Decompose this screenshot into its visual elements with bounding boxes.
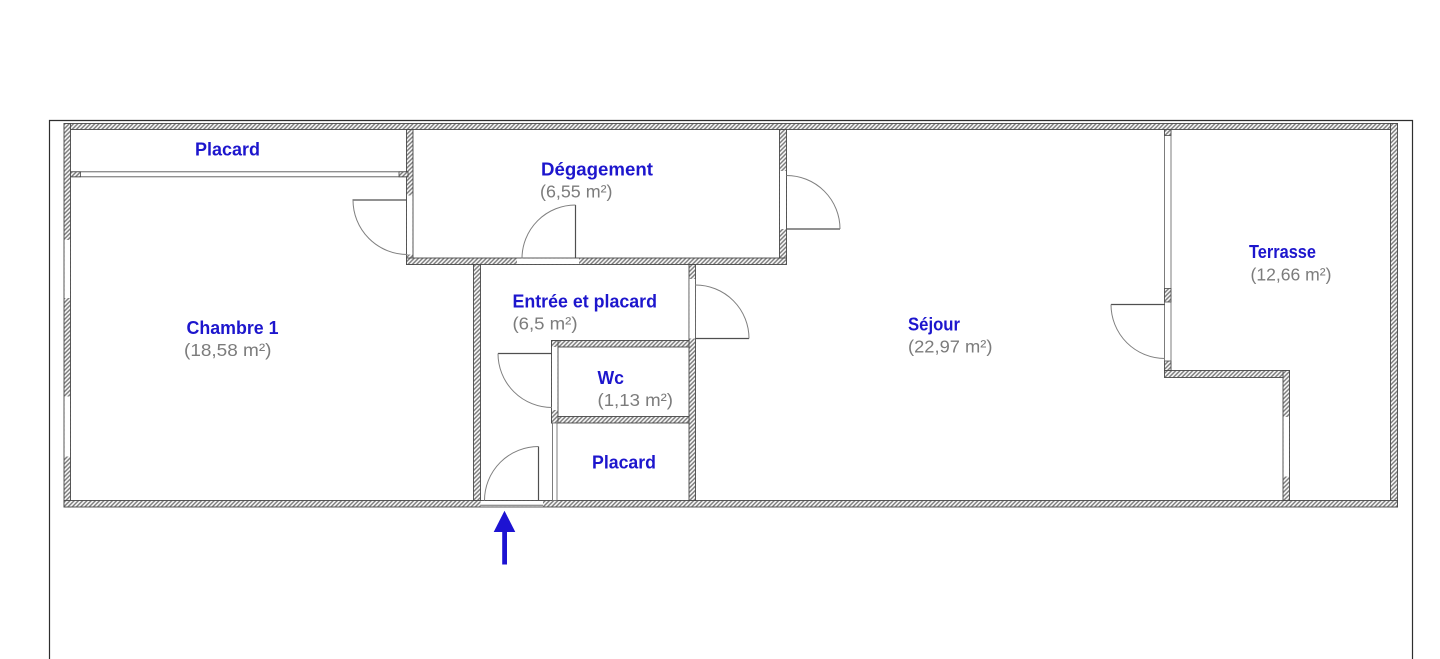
svg-text:Entrée et placard: Entrée et placard [513,292,658,312]
svg-text:(6,55 m²): (6,55 m²) [540,182,613,202]
svg-text:Chambre 1: Chambre 1 [187,318,279,338]
svg-text:Séjour: Séjour [908,315,960,335]
svg-text:Dégagement: Dégagement [541,160,653,180]
svg-text:Wc: Wc [598,368,625,388]
svg-text:(6,5 m²): (6,5 m²) [513,314,578,334]
svg-text:(1,13 m²): (1,13 m²) [598,390,674,410]
svg-text:Terrasse: Terrasse [1249,242,1316,262]
svg-text:(12,66 m²): (12,66 m²) [1251,265,1332,285]
svg-text:Placard: Placard [195,140,260,160]
svg-text:(18,58 m²): (18,58 m²) [184,340,272,360]
svg-text:(22,97 m²): (22,97 m²) [908,337,993,357]
svg-text:Placard: Placard [592,453,656,473]
